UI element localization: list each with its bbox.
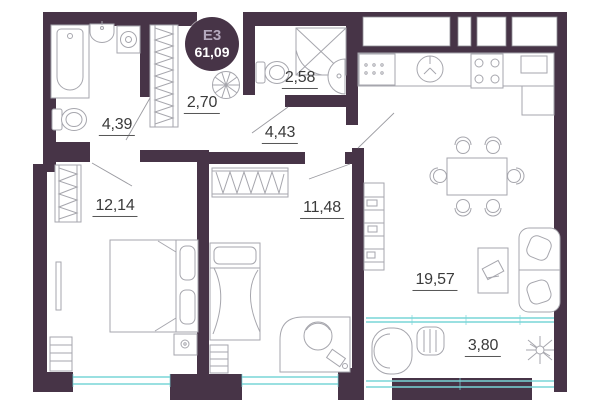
armchair-icon [372, 328, 412, 374]
dresser-icon [50, 337, 72, 371]
bathtub-icon [51, 25, 89, 98]
tv-stand-icon [478, 248, 508, 293]
tv-icon [56, 262, 61, 310]
plan-code: E3 [203, 28, 221, 45]
stove-icon [471, 54, 503, 88]
sink-icon [90, 21, 114, 43]
wardrobe-icon [150, 25, 178, 127]
sink-icon [328, 59, 345, 94]
toilet-icon [52, 109, 87, 131]
nightstand-icon [174, 334, 197, 355]
kitchen-sink-icon [417, 56, 443, 82]
room-area-label-bedroom-2: 11,48 [300, 200, 344, 219]
room-area-label-balcony: 3,80 [465, 338, 501, 357]
dining-table-icon [447, 158, 507, 195]
bookshelf-icon [364, 183, 384, 270]
sofa-icon [519, 228, 560, 312]
room-area-label-corridor: 4,43 [262, 125, 298, 144]
dresser-icon [210, 345, 228, 373]
single-bed-icon [210, 243, 260, 340]
plan-badge: E3 61,09 [185, 17, 239, 71]
cooktop-icon [359, 54, 395, 85]
wardrobe-icon [55, 165, 81, 222]
room-area-label-bathroom: 4,39 [99, 117, 135, 136]
room-area-label-wc: 2,58 [282, 70, 318, 89]
room-area-label-bedroom-1: 12,14 [92, 198, 137, 217]
wardrobe-icon [212, 168, 288, 197]
plant-icon [526, 336, 554, 364]
pouf-icon [417, 327, 444, 355]
plan-total-area: 61,09 [194, 45, 229, 60]
washing-machine-icon [117, 26, 140, 53]
room-area-label-hall: 2,70 [184, 95, 220, 114]
fridge-icon [521, 56, 547, 73]
floor-plan: 4,39 2,70 2,58 4,43 12,14 11,48 19,57 3,… [0, 0, 600, 400]
room-area-label-kitchen-living: 19,57 [412, 272, 457, 291]
double-bed-icon [110, 240, 198, 332]
chair-icon [304, 322, 332, 350]
top-wall-windows [363, 17, 557, 46]
